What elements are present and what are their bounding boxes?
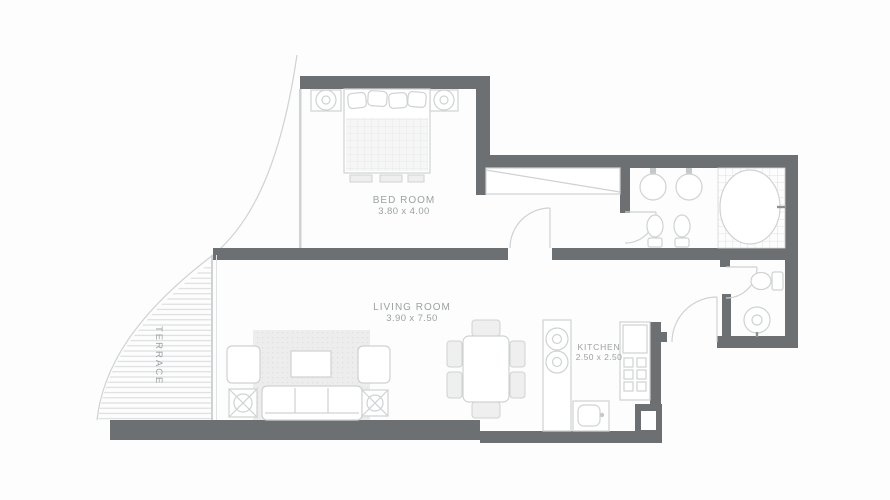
terrace-label: TERRACE (153, 326, 164, 385)
sofa (262, 386, 362, 420)
bathtub (720, 170, 780, 244)
side-table-left (229, 389, 257, 417)
kitchen-fixtures (543, 320, 650, 431)
living-window-inner (216, 255, 217, 420)
side-table-right (362, 390, 388, 416)
wall-closet-endcap (476, 167, 486, 195)
living-set (227, 330, 390, 420)
wall-bedroom-right (476, 76, 490, 168)
armchair-left (227, 346, 260, 383)
floor-plan-drawing: BED ROOM 3.80 x 4.00 LIVING ROOM 3.90 x … (0, 0, 890, 500)
bedroom-window (299, 89, 302, 248)
toilet (647, 215, 663, 247)
guest-wc (744, 272, 783, 337)
sink-right-faucet-icon (686, 168, 692, 174)
bed-foot-bench (350, 175, 424, 182)
bedroom-dimensions: 3.80 x 4.00 (378, 206, 429, 217)
wall-bathroom-left (620, 167, 630, 213)
armchair-right (358, 346, 390, 383)
bedroom-set (311, 89, 458, 182)
wall-bedroom-top (300, 76, 490, 89)
kitchen-label: KITCHEN (578, 342, 621, 352)
wall-bottom-kitchen (480, 431, 662, 443)
wall-hall-door-stub (650, 332, 667, 342)
bedroom-door (510, 208, 550, 248)
closet (486, 168, 620, 194)
dining-chair-right-2 (510, 372, 525, 398)
hallway-door (672, 297, 717, 342)
living-window-outer (211, 255, 213, 420)
coffee-table (291, 351, 331, 377)
dining-set (447, 320, 525, 418)
wall-corridor-bottom-right (552, 248, 785, 260)
wall-corridor-bottom-left (213, 248, 508, 260)
nightstand-left (311, 90, 341, 111)
bed-blanket (346, 118, 428, 171)
kitchen-dimensions: 2.50 x 2.50 (576, 352, 622, 362)
sink-left-faucet-icon (650, 168, 656, 174)
dining-chair-right-1 (510, 341, 525, 367)
dining-chair-bottom (472, 402, 500, 418)
wall-wc-stub (720, 258, 730, 267)
dining-chair-left-2 (447, 372, 462, 398)
bath-sink-right (676, 174, 702, 200)
living-room-dimensions: 3.90 x 7.50 (386, 313, 437, 324)
floor-plan: BED ROOM 3.80 x 4.00 LIVING ROOM 3.90 x … (0, 0, 890, 500)
wall-wc-left (722, 294, 731, 342)
bedroom-label: BED ROOM (373, 195, 435, 206)
bath-sink-left (640, 174, 666, 200)
dining-chair-left-1 (447, 341, 462, 367)
wall-corridor-top (476, 155, 798, 168)
wc-sink (744, 307, 770, 337)
wall-wc-bottom (717, 336, 798, 348)
bidet (674, 215, 690, 247)
bathroom (640, 168, 785, 248)
kitchen-washer (546, 328, 568, 350)
living-room-label: LIVING ROOM (373, 302, 451, 313)
kitchen-sink-tap-icon (600, 413, 604, 417)
wc-toilet (751, 272, 783, 290)
dining-table (463, 336, 509, 402)
wall-outer-right (785, 155, 798, 348)
dining-chair-top (472, 320, 500, 336)
nightstand-right (430, 90, 458, 111)
kitchen-column-inset (641, 411, 656, 430)
wall-bottom-main (110, 420, 480, 440)
kitchen-dryer (546, 351, 568, 373)
